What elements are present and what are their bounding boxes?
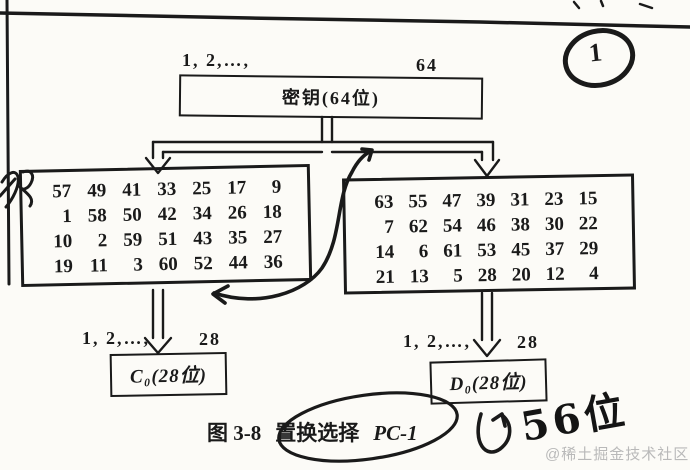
pc1-right-matrix: 6355473931231576254463830221466153453729… (342, 173, 636, 294)
pc1-cell: 49 (71, 178, 107, 204)
pc1-cell: 9 (246, 175, 282, 201)
pc1-cell: 52 (178, 251, 214, 277)
pc1-cell: 53 (462, 238, 496, 264)
pc1-cell: 44 (213, 250, 249, 276)
pc1-cell: 54 (428, 213, 462, 239)
pc1-cell: 62 (394, 214, 428, 240)
pc1-cell: 30 (530, 212, 564, 238)
cutoff-text-marks (574, 1, 652, 8)
pc1-cell: 17 (211, 175, 247, 201)
circled-annotation-number: 1 (587, 37, 603, 68)
pc1-cell: 51 (142, 227, 178, 253)
figure-caption: 图 3-8 置换选择 PC-1 (207, 417, 418, 447)
pc1-cell: 21 (361, 265, 395, 291)
pc1-cell: 2 (72, 228, 108, 254)
pc1-cell: 29 (564, 236, 598, 262)
pc1-cell: 25 (176, 176, 212, 202)
hook-arrowhead-icon (493, 414, 505, 426)
s-curve-arrowhead-icon (213, 286, 228, 303)
pc1-cell: 59 (107, 227, 143, 253)
key-index-end-label: 64 (416, 55, 438, 76)
figure-number: 图 3-8 (207, 417, 261, 447)
pc1-cell: 34 (177, 201, 213, 227)
pc1-cell: 61 (428, 238, 462, 264)
pc1-cell: 35 (212, 225, 248, 251)
s-curve-tail-hook-icon (362, 149, 372, 160)
pc1-cell: 43 (177, 226, 213, 252)
c0-index-start-label: 1, 2,…, (82, 328, 150, 349)
pc1-cell: 31 (495, 187, 529, 213)
pc1-right-table: 6355473931231576254463830221466153453729… (359, 186, 599, 290)
pc1-cell: 60 (143, 252, 179, 278)
right-arrowhead-icon (475, 160, 499, 176)
pc1-cell: 26 (211, 200, 247, 226)
pc1-cell: 15 (563, 186, 597, 212)
pc1-cell: 58 (72, 203, 108, 229)
pc1-cell: 10 (37, 229, 73, 255)
pc1-cell: 3 (108, 252, 144, 278)
pc1-cell: 28 (463, 263, 497, 289)
c0-register-label: C₀(28位) (130, 360, 207, 388)
figure-title-cn: 置换选择 (275, 417, 359, 447)
pc1-cell: 45 (496, 237, 530, 263)
pc1-cell: 57 (36, 179, 72, 205)
pc1-cell: 47 (427, 188, 461, 214)
scanned-textbook-figure: 1, 2,…, 64 密钥(64位) 574941332517915850423… (0, 0, 690, 470)
figure-title-en: PC-1 (373, 421, 417, 446)
key-box: 密钥(64位) (179, 74, 483, 119)
pc1-cell: 36 (248, 250, 284, 276)
pc1-left-table: 5749413325179158504234261810259514335271… (36, 175, 283, 280)
d0-index-end-label: 28 (517, 332, 539, 353)
key-box-label: 密钥(64位) (282, 83, 380, 110)
d0-index-start-label: 1, 2,…, (403, 331, 471, 352)
pc1-cell: 13 (395, 264, 429, 290)
d0-register-label: D₀(28位) (449, 367, 528, 396)
pc1-cell: 14 (360, 240, 394, 266)
pc1-cell: 23 (529, 187, 563, 213)
pc1-cell: 12 (530, 262, 564, 288)
pc1-cell: 6 (394, 239, 428, 265)
pc1-cell: 20 (497, 262, 531, 288)
pc1-cell: 50 (107, 202, 143, 228)
pc1-cell: 39 (461, 188, 495, 214)
pc1-cell: 5 (429, 263, 463, 289)
pc1-cell: 33 (141, 177, 177, 203)
page-top-rule (0, 13, 690, 27)
pc1-cell: 37 (530, 237, 564, 263)
pc1-cell: 41 (106, 178, 142, 204)
pc1-cell: 18 (246, 200, 282, 226)
key-index-start-label: 1, 2,…, (182, 50, 250, 71)
pc1-cell: 1 (37, 204, 73, 230)
right-matrix-to-d0-arrow (474, 293, 500, 356)
pc1-cell: 55 (393, 189, 427, 215)
page-left-border (7, 0, 9, 284)
d0-arrowhead-icon (474, 340, 500, 356)
pc1-left-matrix: 5749413325179158504234261810259514335271… (19, 164, 312, 287)
watermark-text: @稀土掘金技术社区 (545, 443, 689, 464)
pc1-cell: 63 (359, 190, 393, 216)
pc1-cell: 11 (73, 253, 109, 279)
pc1-cell: 22 (564, 211, 598, 237)
c0-register-box: C₀(28位) (110, 352, 228, 397)
pc1-cell: 7 (360, 215, 394, 241)
pc1-cell: 38 (496, 212, 530, 238)
c0-index-end-label: 28 (199, 329, 221, 350)
handwritten-hook-arrow (478, 414, 510, 452)
pc1-cell: 4 (564, 261, 598, 287)
pc1-cell: 19 (38, 254, 74, 280)
pc1-cell: 46 (462, 213, 496, 239)
pc1-cell: 42 (142, 202, 178, 228)
pc1-cell: 27 (247, 225, 283, 251)
